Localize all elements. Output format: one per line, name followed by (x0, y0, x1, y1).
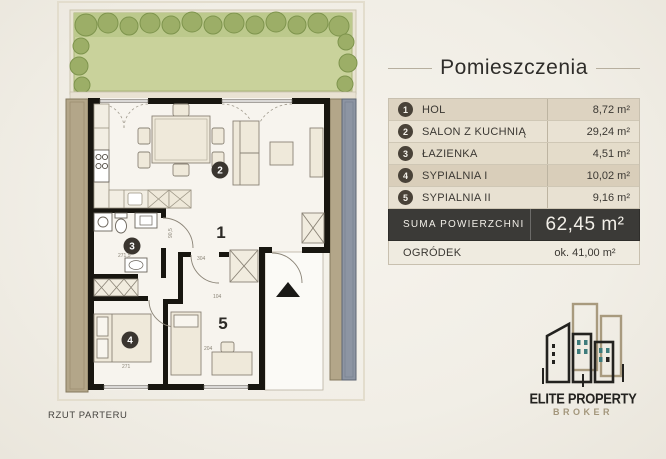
row-number-badge: 1 (398, 102, 413, 117)
title-rule-right (596, 68, 640, 69)
room-1-number: 1 (216, 223, 225, 242)
row-number-badge: 5 (398, 190, 413, 205)
logo-subtitle: BROKER (508, 407, 658, 417)
coffee-table (270, 142, 293, 165)
sofa (233, 121, 259, 185)
room-2-number: 2 (217, 166, 223, 177)
living-wardrobe (302, 213, 324, 243)
left-neighbor-strip (66, 99, 88, 392)
table-row: 5 SYPIALNIA II 9,16 m² (389, 187, 639, 209)
room-area: 29,24 m² (547, 121, 639, 142)
row-number-badge: 3 (398, 146, 413, 161)
buildings-icon (535, 302, 631, 388)
table-row: 1 HOL 8,72 m² (389, 99, 639, 121)
table-row: 3 ŁAZIENKA 4,51 m² (389, 143, 639, 165)
rooms-table: 1 HOL 8,72 m² 2 SALON Z KUCHNIĄ 29,24 m²… (388, 98, 640, 209)
stove (94, 150, 109, 182)
summary-label: SUMA POWIERZCHNI (389, 219, 530, 230)
summary-row: SUMA POWIERZCHNI 62,45 m² (388, 209, 640, 241)
bed-single (171, 312, 201, 375)
garden-row: OGRÓDEK ok. 41,00 m² (388, 241, 640, 265)
svg-text:271,5: 271,5 (118, 253, 131, 259)
logo-name: ELITE PROPERTY (514, 389, 652, 406)
flyer-page: 2 3 4 1 5 304 104 271,5 271 204 90,5 RZU… (0, 0, 666, 459)
room-label: SYPIALNIA II (422, 192, 547, 204)
hall-niche-wardrobe (94, 279, 138, 296)
summary-value: 62,45 m² (530, 209, 639, 240)
svg-text:304: 304 (197, 256, 206, 262)
title-rule-left (388, 68, 432, 69)
room-4-number: 4 (127, 336, 133, 347)
floor-plan: 2 3 4 1 5 304 104 271,5 271 204 90,5 (0, 0, 380, 459)
entry-corridor (265, 252, 323, 390)
row-number-badge: 4 (398, 168, 413, 183)
panel-title: Pomieszczenia (388, 56, 640, 80)
svg-text:104: 104 (213, 294, 222, 300)
row-number-badge: 2 (398, 124, 413, 139)
svg-text:271: 271 (122, 364, 131, 370)
rooms-panel: Pomieszczenia 1 HOL 8,72 m² 2 SALON Z KU… (388, 56, 640, 265)
room-label: SYPIALNIA I (422, 170, 547, 182)
right-neighbor-strips (330, 99, 356, 380)
room-5-number: 5 (218, 314, 227, 333)
room-label: ŁAZIENKA (422, 148, 547, 160)
table-row: 2 SALON Z KUCHNIĄ 29,24 m² (389, 121, 639, 143)
room-area: 10,02 m² (547, 165, 639, 186)
svg-text:90,5: 90,5 (168, 228, 174, 238)
plan-caption: RZUT PARTERU (48, 410, 128, 421)
room-area: 9,16 m² (547, 187, 639, 208)
room-3-number: 3 (129, 242, 135, 253)
room-label: HOL (422, 104, 547, 116)
brand-logo: ELITE PROPERTY BROKER (508, 302, 658, 417)
garden (70, 10, 357, 94)
hall-wardrobe (230, 250, 258, 282)
panel-title-text: Pomieszczenia (440, 56, 588, 80)
tv-cabinet (310, 128, 323, 177)
svg-text:204: 204 (204, 346, 213, 352)
garden-value: ok. 41,00 m² (531, 247, 639, 259)
room-label: SALON Z KUCHNIĄ (422, 126, 547, 138)
table-row: 4 SYPIALNIA I 10,02 m² (389, 165, 639, 187)
garden-label: OGRÓDEK (389, 247, 531, 259)
room-area: 8,72 m² (547, 99, 639, 120)
room-area: 4,51 m² (547, 143, 639, 164)
